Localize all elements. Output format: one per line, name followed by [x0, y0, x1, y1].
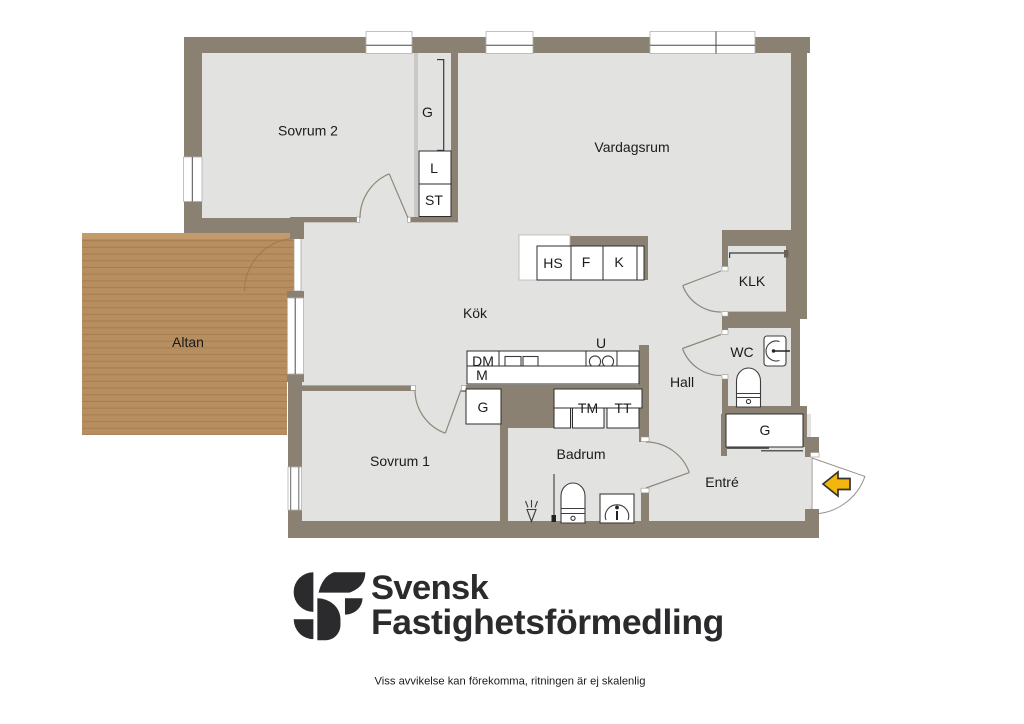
svg-text:Hall: Hall	[670, 374, 694, 390]
svg-text:G: G	[760, 422, 771, 438]
svg-text:U: U	[596, 335, 606, 351]
svg-text:G: G	[422, 104, 433, 120]
svg-text:HS: HS	[543, 255, 562, 271]
svg-text:Viss avvikelse kan förekomma,: Viss avvikelse kan förekomma, ritningen …	[375, 676, 646, 688]
svg-text:Sovrum 1: Sovrum 1	[370, 453, 430, 469]
svg-text:M: M	[476, 367, 488, 383]
svg-text:Fastighetsförmedling: Fastighetsförmedling	[371, 602, 724, 642]
svg-text:Entré: Entré	[705, 474, 739, 490]
svg-text:G: G	[478, 399, 489, 415]
svg-text:Sovrum 2: Sovrum 2	[278, 122, 338, 138]
svg-text:F: F	[582, 254, 591, 270]
svg-text:Badrum: Badrum	[556, 446, 605, 462]
svg-text:Altan: Altan	[172, 334, 204, 350]
svg-text:L: L	[430, 160, 438, 176]
svg-text:Vardagsrum: Vardagsrum	[594, 139, 669, 155]
svg-text:WC: WC	[730, 344, 753, 360]
svg-text:Kök: Kök	[463, 305, 488, 321]
svg-text:ST: ST	[425, 192, 443, 208]
svg-text:TM: TM	[578, 400, 598, 416]
svg-text:KLK: KLK	[739, 273, 766, 289]
svg-text:TT: TT	[614, 400, 632, 416]
svg-text:K: K	[614, 254, 624, 270]
